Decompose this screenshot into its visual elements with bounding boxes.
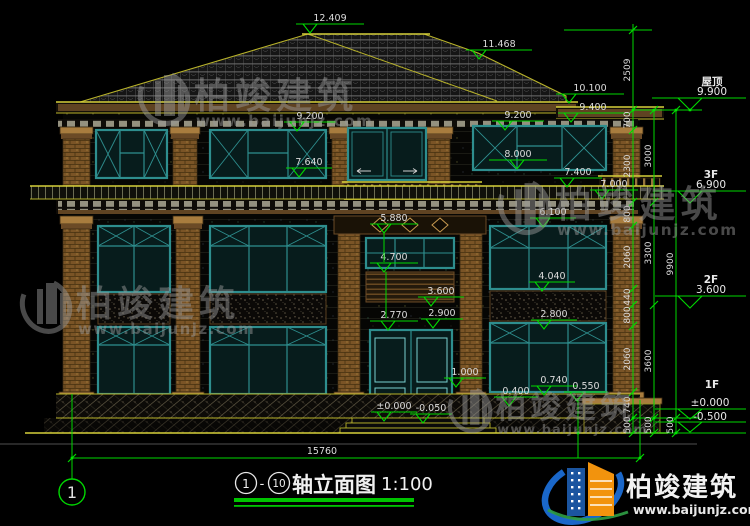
drawing-scale: 1:100 <box>381 474 433 495</box>
window-2f-left1 <box>98 226 170 292</box>
elevation-value: 4.040 <box>538 271 565 282</box>
elevation-value: 9.200 <box>504 110 531 121</box>
cad-elevation-screenshot: 柏竣建筑 www.baijunjz.com <box>0 0 750 526</box>
title-axis-start: 1 <box>242 477 250 491</box>
elevation-drawing: 柏竣建筑 www.baijunjz.com <box>0 0 750 526</box>
axis-bubble-1: 1 <box>59 479 85 505</box>
title-underline-thick <box>234 498 414 502</box>
elevation-value: 10.100 <box>573 83 606 94</box>
elevation-value: 0.740 <box>540 375 567 386</box>
level-marker-roof: 屋顶 9.900 <box>652 76 746 110</box>
dim-value: 800 <box>623 306 633 323</box>
level-marker-2f: 2F 3.600 <box>655 274 746 308</box>
window-3f-left1 <box>96 130 167 178</box>
level-value: -0.500 <box>693 411 727 423</box>
level-label: 1F <box>705 379 719 391</box>
logo-brand-text: 柏竣建筑 <box>626 472 738 503</box>
title-underline-thin <box>234 505 414 507</box>
elevation-value: 3.600 <box>427 286 454 297</box>
window-3f-left2 <box>210 130 326 178</box>
dim-value: 2300 <box>623 154 633 177</box>
elevation-value: 2.900 <box>428 308 455 319</box>
elevation-value: 2.800 <box>540 309 567 320</box>
axis-bubble-number: 1 <box>67 483 77 502</box>
dim-value: 2060 <box>623 245 633 268</box>
dim-value: 700 <box>623 111 633 128</box>
elevation-value: 9.400 <box>579 102 606 113</box>
window-2f-left2 <box>210 226 326 292</box>
total-width-value: 15760 <box>307 446 337 457</box>
dim-chain-mid: 3000 3300 3600 500 <box>644 106 658 437</box>
pilaster <box>60 127 93 192</box>
elevation-value: -0.050 <box>416 403 447 414</box>
logo-url-text: www.baijunjz.com <box>633 502 750 517</box>
window-3f-right <box>473 126 606 170</box>
elevation-value: ±0.000 <box>376 401 411 412</box>
elevation-value: 5.880 <box>380 213 407 224</box>
level-value: ±0.000 <box>691 397 730 409</box>
elevation-value: 8.000 <box>504 149 531 160</box>
elevation-value: 12.409 <box>313 13 346 24</box>
pilaster <box>170 127 200 192</box>
elevation-marker: 10.100 <box>556 83 624 103</box>
elevation-value: 2.770 <box>380 310 407 321</box>
dim-value: 9900 <box>666 252 676 275</box>
elevation-value: 1.000 <box>451 367 478 378</box>
title-block: 1 - 10 轴立面图 1:100 <box>234 473 433 507</box>
dim-value: 2060 <box>623 347 633 370</box>
elevation-value: 7.640 <box>295 157 322 168</box>
dim-value: 3300 <box>644 241 654 264</box>
dim-value: 440 <box>623 288 633 305</box>
title-separator: - <box>260 477 265 492</box>
dim-value: 3000 <box>644 144 654 167</box>
drawing-title: 轴立面图 <box>292 473 376 497</box>
dim-value: 500 <box>666 416 676 433</box>
sliding-door-3f <box>348 128 426 180</box>
title-axis-end: 10 <box>272 478 285 490</box>
elevation-value: 11.468 <box>482 39 515 50</box>
level-value: 3.600 <box>696 284 726 296</box>
dim-value: 3600 <box>644 349 654 372</box>
elevation-value: 7.400 <box>564 167 591 178</box>
logo-tower <box>567 468 585 516</box>
elevation-marker: 12.409 <box>296 13 364 33</box>
dim-value: 2509 <box>623 58 633 81</box>
dim-chain-outer: 9900 500 <box>666 106 680 437</box>
level-value: 9.900 <box>697 86 727 98</box>
brand-logo: 柏竣建筑 www.baijunjz.com <box>535 451 750 526</box>
